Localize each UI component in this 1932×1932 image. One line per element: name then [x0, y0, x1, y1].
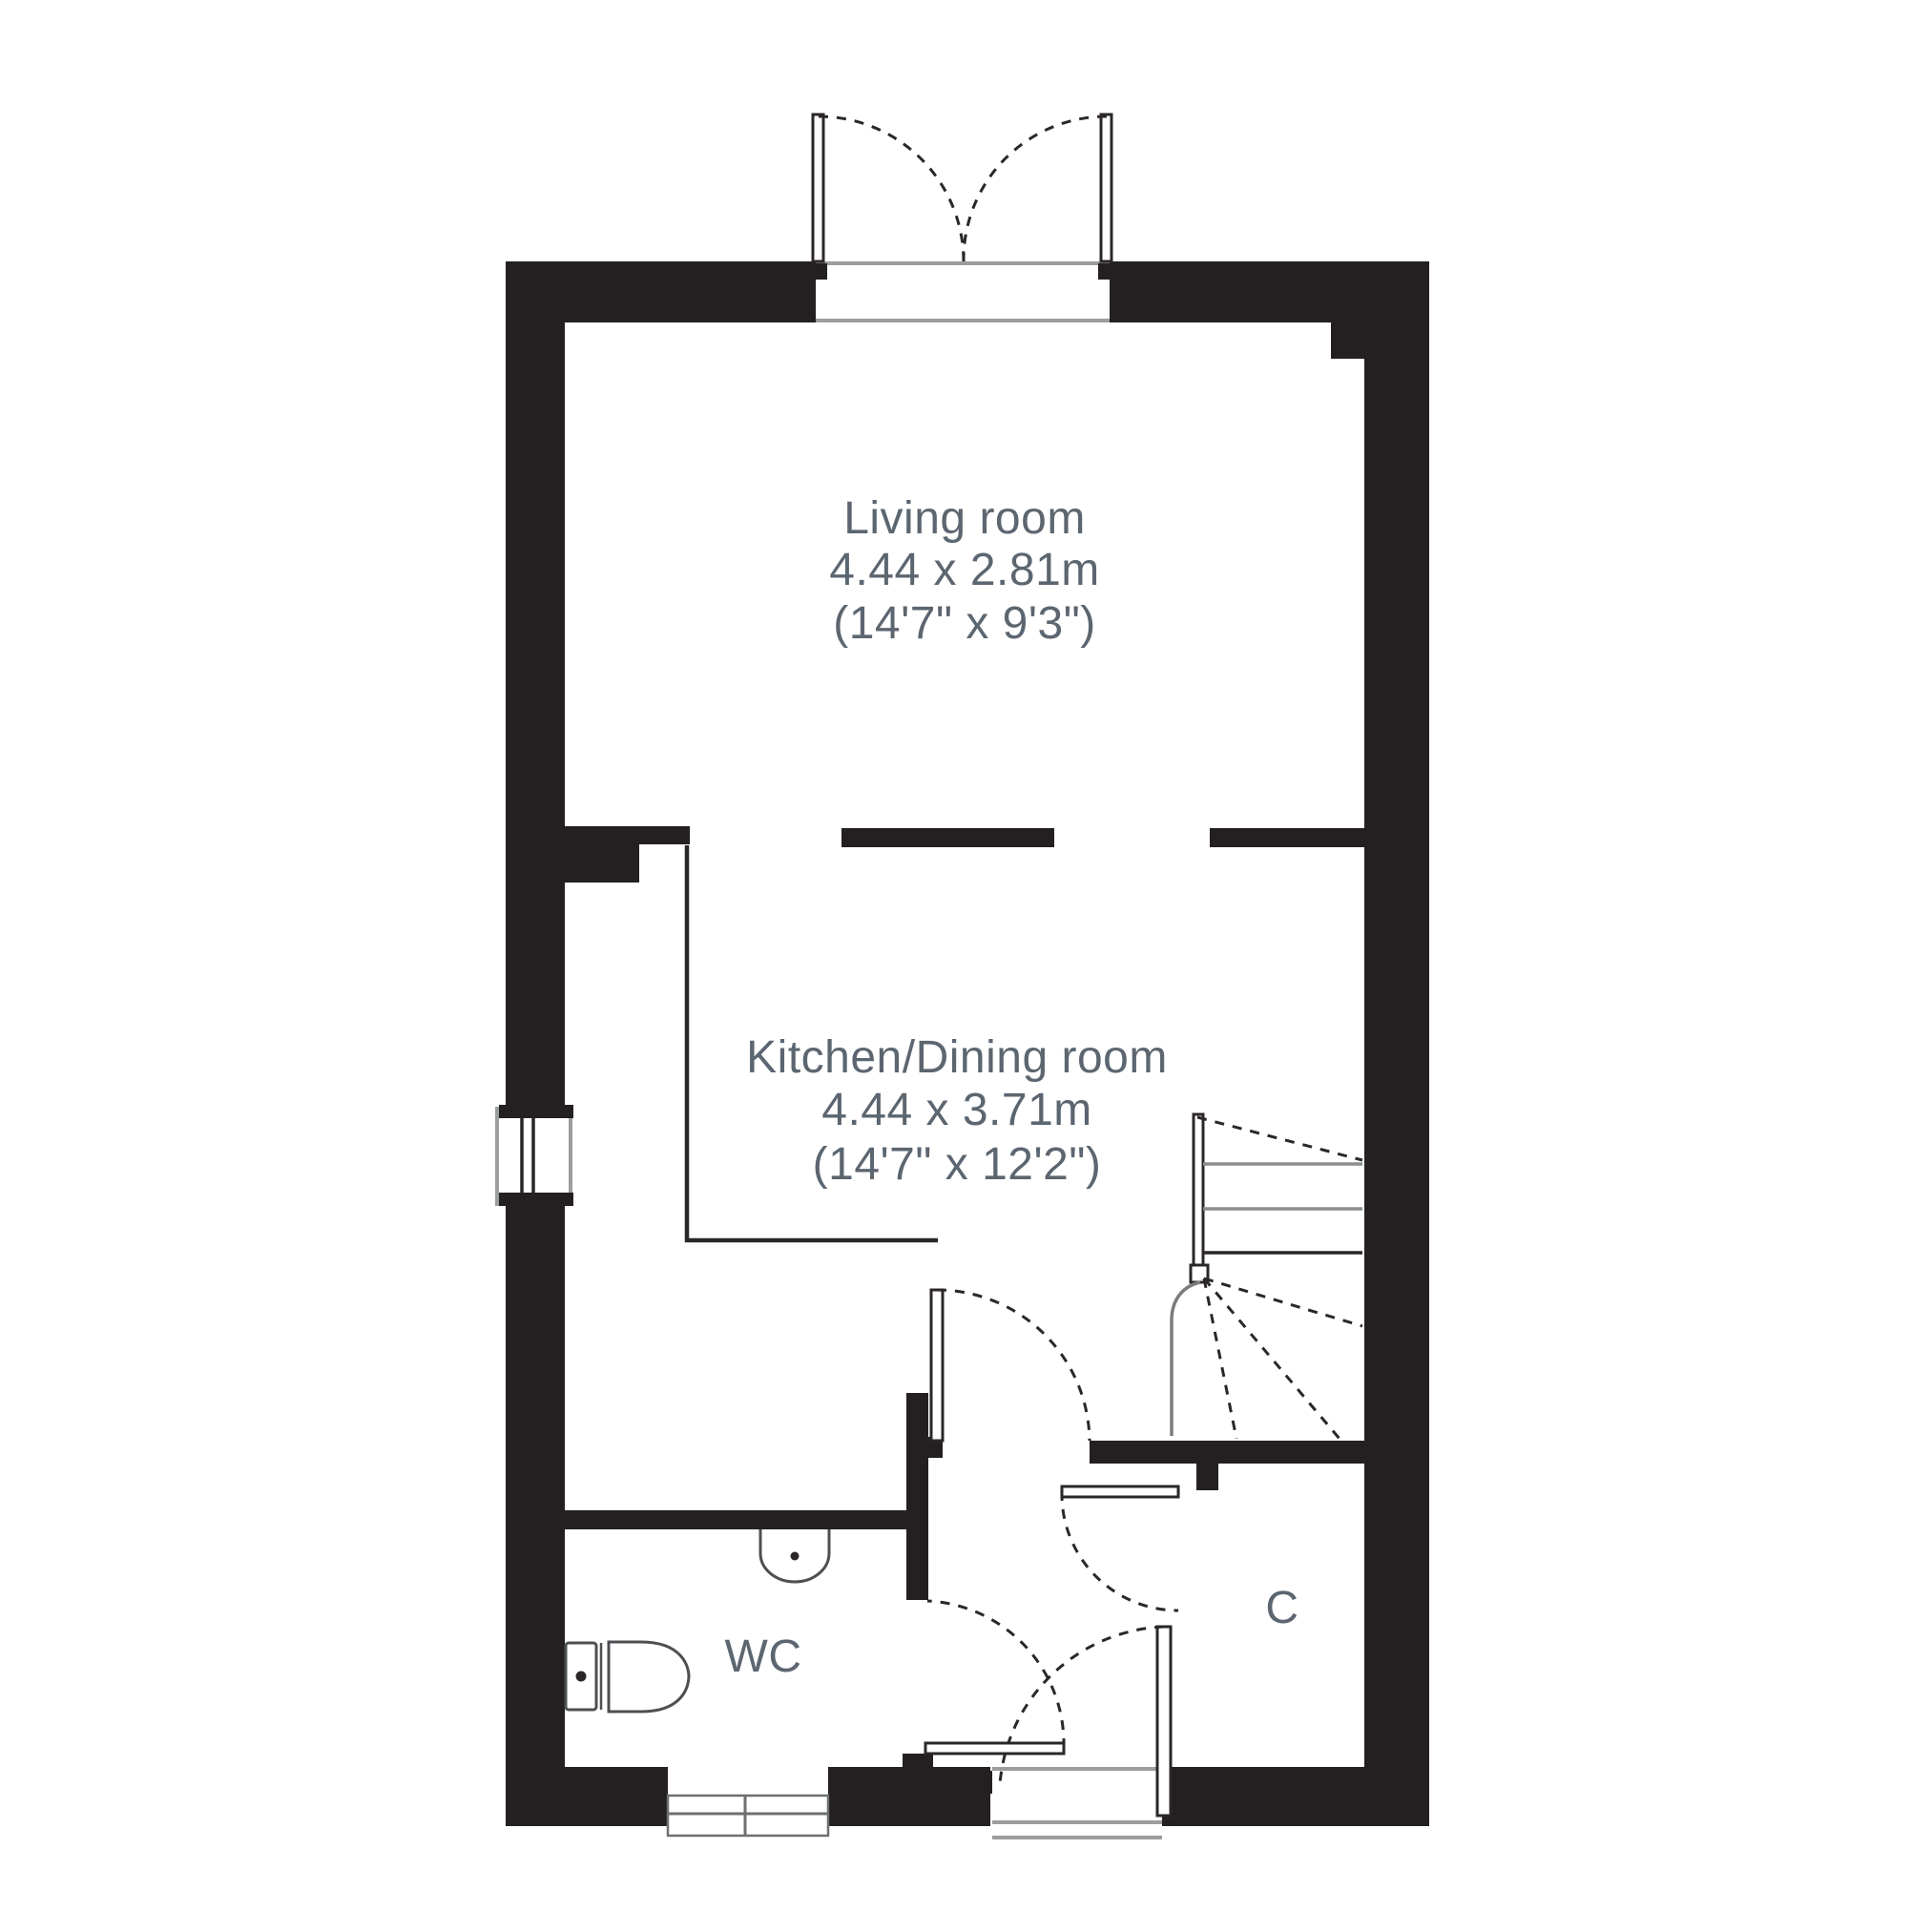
kitchen-door-leaf	[931, 1290, 943, 1441]
kitchen-room-name: Kitchen/Dining room	[746, 1032, 1168, 1083]
french-door-swing-right	[964, 116, 1107, 261]
side-window	[497, 1105, 573, 1206]
bottom-wall-left	[506, 1767, 668, 1826]
french-door-leaf-right	[1101, 114, 1111, 261]
stairs-handrail	[1172, 1282, 1200, 1436]
french-doors	[813, 114, 1111, 321]
cupboard-door-swing	[1062, 1491, 1178, 1610]
wc-label: WC	[725, 1631, 802, 1682]
cupboard-door-jamb-stub	[1196, 1464, 1218, 1490]
front-door-threshold	[992, 1765, 1162, 1839]
stairs-winder-line-1	[1204, 1278, 1362, 1326]
floor-plan: Living room 4.44 x 2.81m (14'7" x 9'3") …	[0, 0, 1932, 1932]
left-wall-lower	[506, 1206, 565, 1826]
left-wall-upper	[506, 261, 565, 1109]
french-door-swing-left	[819, 116, 964, 261]
staircase	[1172, 1114, 1362, 1439]
toilet	[566, 1642, 689, 1712]
living-kitchen-wall-right	[1210, 828, 1364, 847]
side-window-cap-bottom	[499, 1193, 573, 1206]
wc-window-frame	[668, 1796, 828, 1836]
living-kitchen-wall-left-pier	[565, 826, 639, 883]
wc-door	[925, 1601, 1064, 1754]
toilet-flush-dot	[576, 1672, 587, 1682]
front-door	[992, 1627, 1171, 1839]
french-door-leaf-left	[813, 114, 823, 261]
kitchen-door-swing	[937, 1290, 1090, 1441]
living-kitchen-wall-left-lip	[639, 826, 690, 844]
living-room-size-imperial: (14'7" x 9'3")	[833, 598, 1096, 649]
wc-door-leaf	[925, 1743, 1064, 1754]
floor-plan-svg: Living room 4.44 x 2.81m (14'7" x 9'3") …	[0, 0, 1932, 1932]
front-door-leaf	[1157, 1627, 1171, 1816]
hall-wall-vertical-upper	[906, 1393, 928, 1600]
kitchen-room-size-metric: 4.44 x 3.71m	[821, 1085, 1092, 1135]
cupboard-door-leaf	[1062, 1486, 1178, 1497]
basin-faucet-dot	[791, 1552, 800, 1561]
kitchen-room-size-imperial: (14'7" x 12'2")	[813, 1139, 1102, 1190]
kitchen-door	[931, 1290, 1090, 1441]
wc-door-swing	[927, 1601, 1064, 1748]
stairs-winder-line-3	[1204, 1278, 1236, 1439]
living-room-size-metric: 4.44 x 2.81m	[829, 545, 1100, 595]
french-door-hinge-left	[816, 263, 827, 280]
front-door-swing	[1000, 1627, 1164, 1784]
right-wall	[1364, 261, 1429, 1826]
bottom-wall-right	[1162, 1767, 1429, 1826]
wc-window	[668, 1796, 828, 1836]
stairs-hall-wall	[1090, 1441, 1364, 1464]
toilet-bowl	[609, 1642, 689, 1712]
kitchen-wc-wall	[565, 1510, 928, 1529]
right-wall-notch	[1331, 322, 1364, 359]
living-room-name: Living room	[843, 493, 1086, 544]
stairs-break-line	[1197, 1117, 1362, 1160]
room-labels: Living room 4.44 x 2.81m (14'7" x 9'3") …	[725, 493, 1299, 1682]
cupboard-door	[1062, 1486, 1178, 1610]
side-window-cap-top	[499, 1105, 573, 1118]
stairs-side-string	[1194, 1114, 1203, 1277]
wc-door-hinge-nub	[903, 1754, 933, 1771]
basin	[760, 1529, 829, 1582]
stairs-winder-line-2	[1204, 1278, 1340, 1439]
french-door-hinge-right	[1098, 263, 1110, 280]
cupboard-label: C	[1265, 1583, 1298, 1633]
living-kitchen-wall-middle	[841, 828, 1054, 847]
